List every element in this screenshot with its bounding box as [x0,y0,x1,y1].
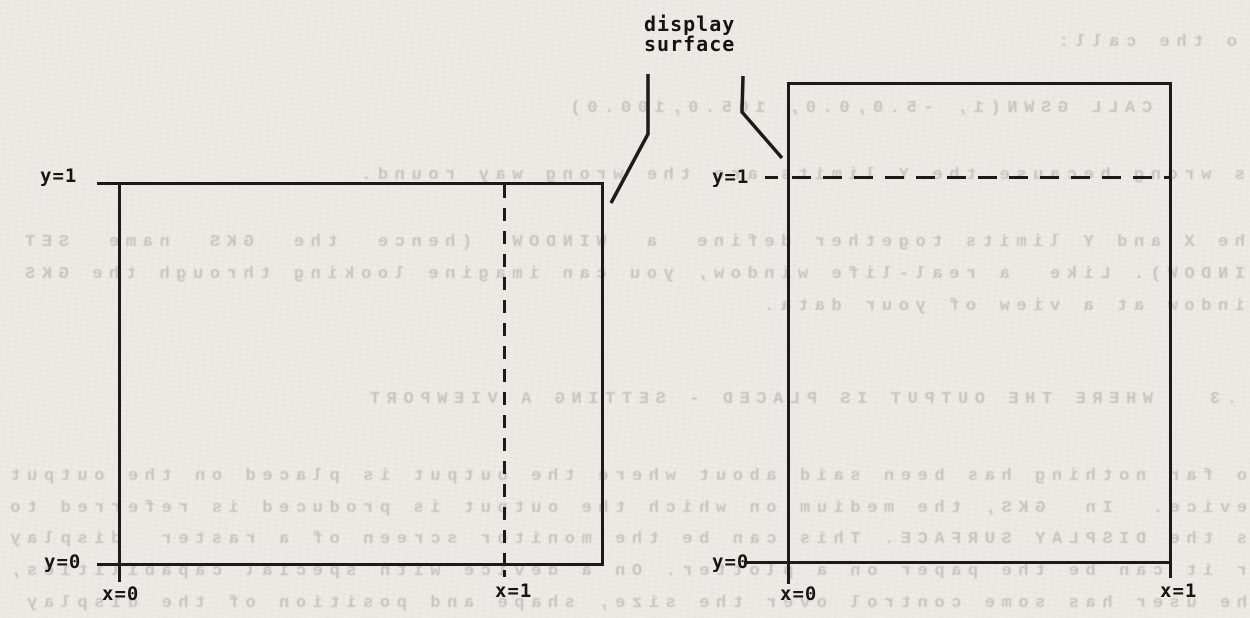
left-panel-rectangle [118,182,604,566]
leader-line-to-right-panel [742,76,782,158]
figure-caption: display surface [644,14,735,54]
bleed-line: o the call: [1052,33,1237,52]
right-panel-rectangle [787,82,1172,564]
left-panel-label-x1: x=1 [495,580,532,602]
right-panel-label-x0: x=0 [780,583,817,605]
scanned-page: o the call:CALL GSWN(1, -5.0,0.0, 105.0,… [0,0,1250,618]
bleed-line: he user has some control over the size, … [20,594,1247,613]
left-panel-label-y0: y=0 [44,551,81,573]
left-panel-label-x0: x=0 [102,583,139,605]
right-panel-label-x1: x=1 [1160,580,1197,602]
left-panel-y0-tick [97,563,120,566]
left-panel-x1-dash-below [503,570,506,577]
right-panel-y1-tick [765,176,778,179]
left-panel-left-edge-extension [118,566,121,582]
left-panel-x1-dashed-line [503,185,506,563]
right-panel-label-y1: y=1 [712,166,749,188]
right-panel-y1-dashed-line [792,176,1170,179]
left-panel-label-y1: y=1 [40,165,77,187]
left-panel-y1-tick [97,182,120,185]
right-panel-y0-tick [744,561,787,564]
leader-line-to-left-panel [611,74,648,203]
right-panel-label-y0: y=0 [712,551,749,573]
caption-line-2: surface [644,34,735,54]
right-panel-left-edge-extension [787,564,790,584]
right-panel-right-edge-extension [1169,564,1172,578]
caption-line-1: display [644,14,735,34]
